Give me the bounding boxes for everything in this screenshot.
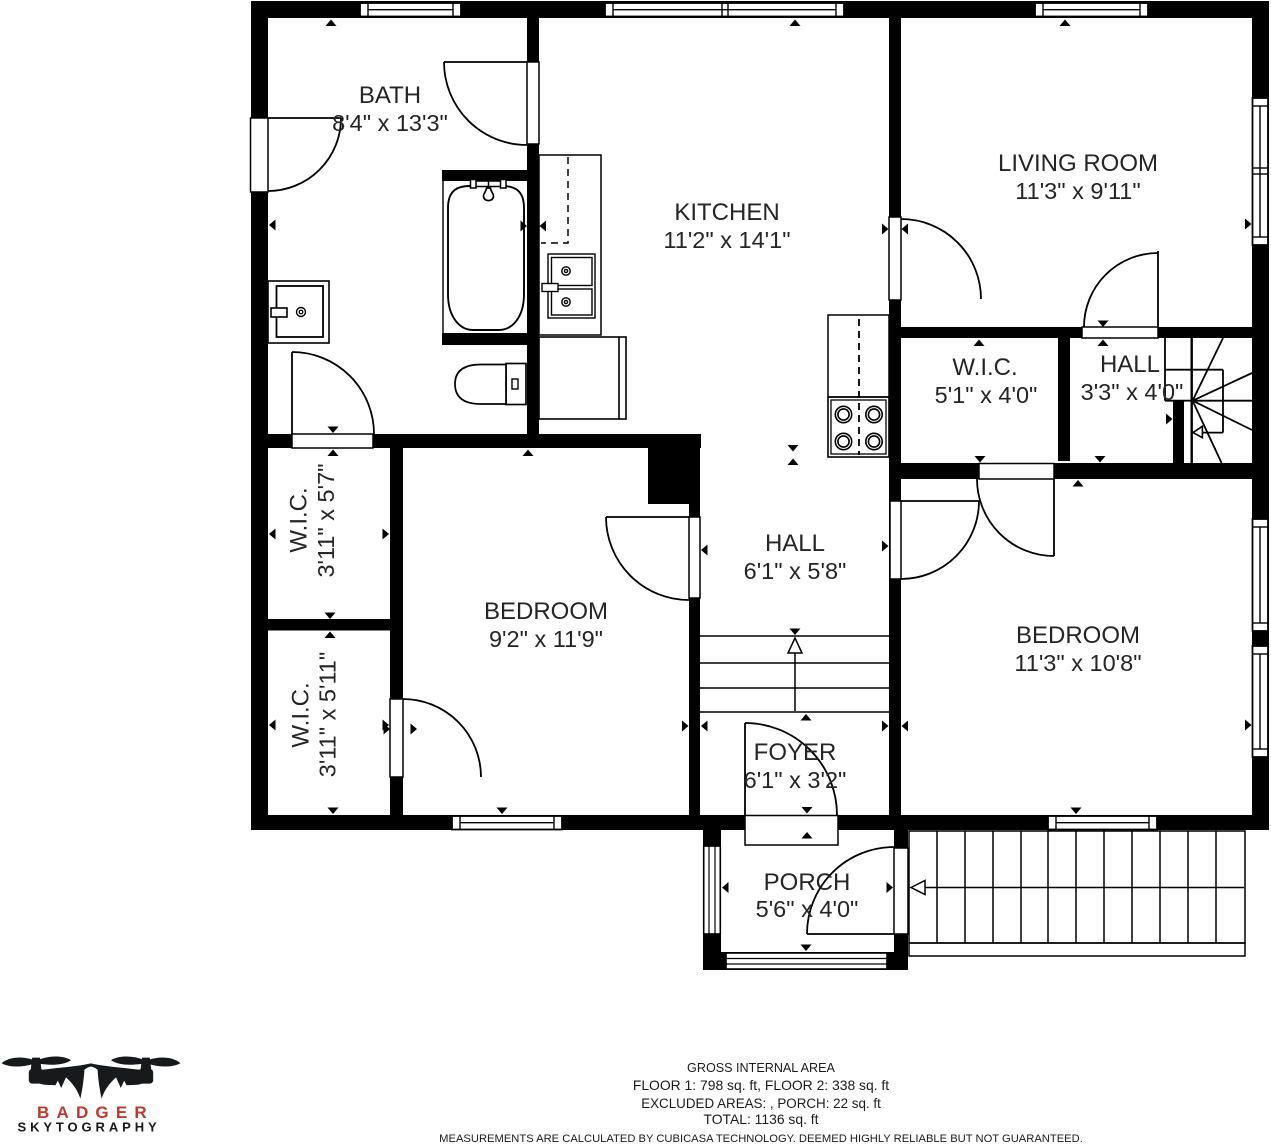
svg-text:6'1" x 3'2": 6'1" x 3'2" [744,767,847,793]
svg-text:3'11" x 5'11": 3'11" x 5'11" [315,652,341,777]
svg-text:W.I.C.: W.I.C. [285,487,312,552]
svg-text:HALL: HALL [1100,351,1160,378]
svg-text:BEDROOM: BEDROOM [1016,622,1140,649]
svg-text:W.I.C.: W.I.C. [952,354,1017,381]
svg-text:6'1" x 5'8": 6'1" x 5'8" [744,558,847,584]
svg-text:BEDROOM: BEDROOM [484,598,608,625]
svg-text:5'6" x 4'0": 5'6" x 4'0" [756,896,859,922]
svg-text:W.I.C.: W.I.C. [287,682,314,747]
svg-text:KITCHEN: KITCHEN [674,199,779,226]
svg-text:HALL: HALL [765,530,825,557]
svg-text:FOYER: FOYER [754,739,837,766]
svg-text:5'1" x 4'0": 5'1" x 4'0" [935,382,1038,408]
svg-text:11'2" x 14'1": 11'2" x 14'1" [663,227,790,253]
svg-text:PORCH: PORCH [764,869,851,896]
svg-text:TOTAL: 1136 sq. ft: TOTAL: 1136 sq. ft [703,1111,818,1127]
svg-text:FLOOR 1: 798 sq. ft, FLOOR 2:: FLOOR 1: 798 sq. ft, FLOOR 2: 338 sq. ft [633,1077,889,1093]
svg-text:11'3" x 10'8": 11'3" x 10'8" [1014,650,1141,676]
svg-text:BATH: BATH [359,82,421,109]
svg-text:LIVING ROOM: LIVING ROOM [998,150,1158,177]
svg-text:9'2" x 11'9": 9'2" x 11'9" [489,626,603,652]
svg-text:8'4" x 13'3": 8'4" x 13'3" [332,110,448,136]
svg-text:11'3" x 9'11": 11'3" x 9'11" [1015,178,1140,204]
svg-text:MEASUREMENTS ARE CALCULATED BY: MEASUREMENTS ARE CALCULATED BY CUBICASA … [439,1133,1083,1144]
svg-text:3'11" x 5'7": 3'11" x 5'7" [313,463,339,577]
svg-text:3'3" x 4'0": 3'3" x 4'0" [1081,379,1184,405]
svg-text:SKYTOGRAPHY: SKYTOGRAPHY [18,1120,161,1135]
svg-text:EXCLUDED AREAS: , PORCH: 22 sq: EXCLUDED AREAS: , PORCH: 22 sq. ft [641,1096,881,1111]
svg-text:GROSS INTERNAL AREA: GROSS INTERNAL AREA [687,1061,835,1075]
